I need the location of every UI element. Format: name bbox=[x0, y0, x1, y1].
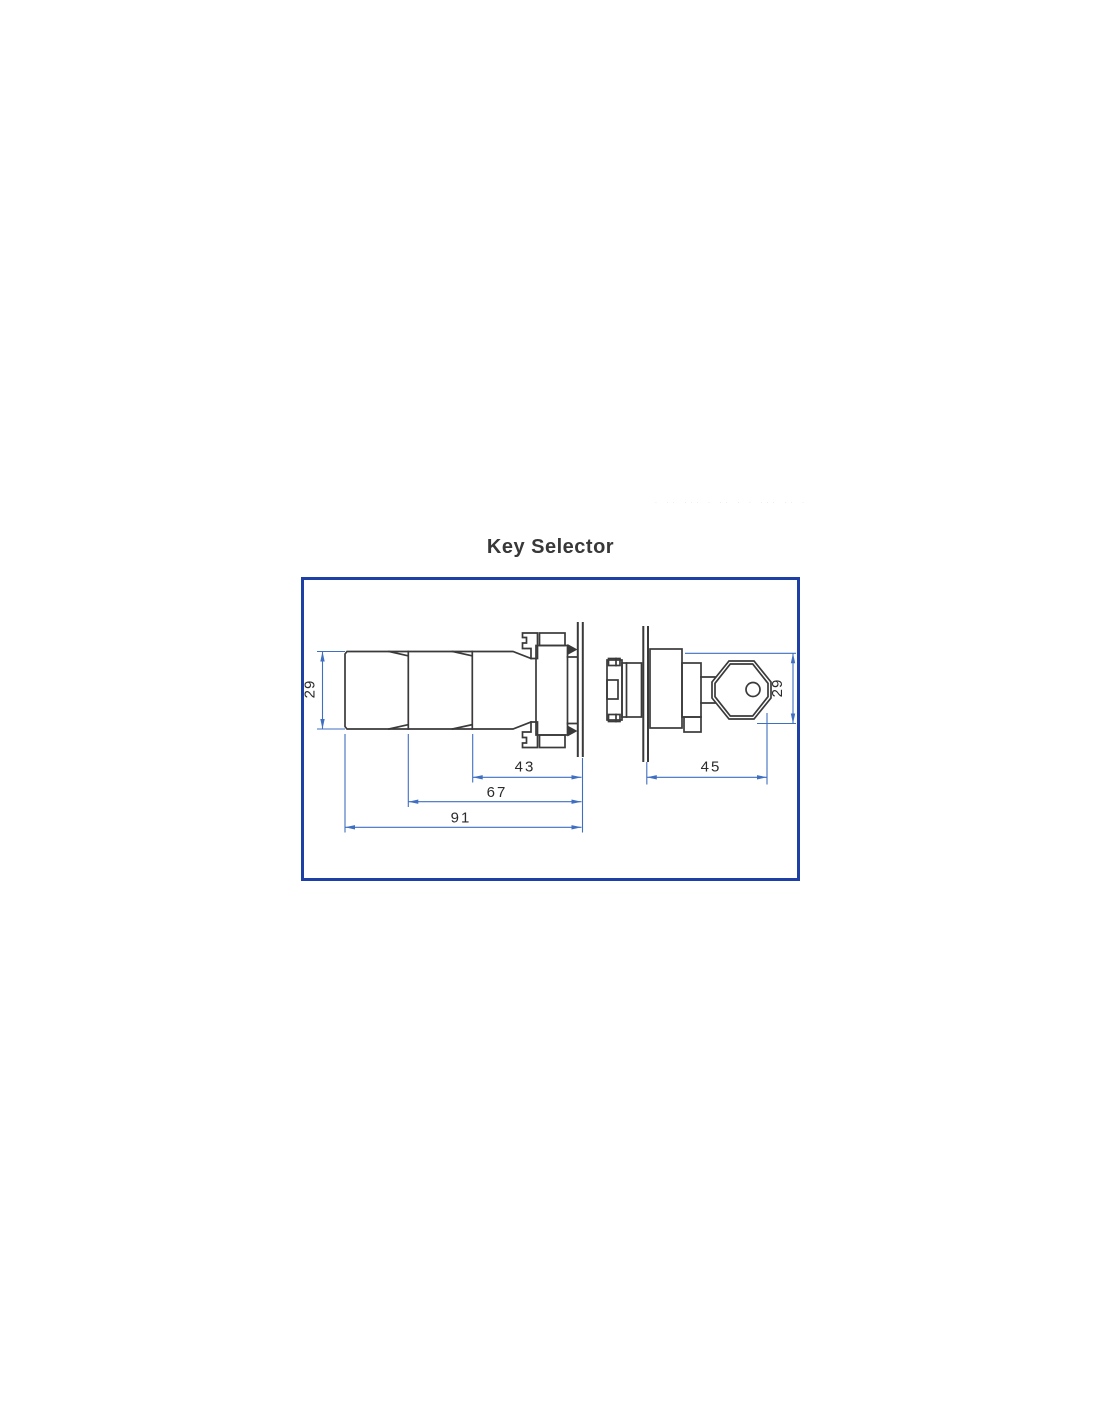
panel-right bbox=[643, 626, 648, 762]
front-bezel bbox=[682, 663, 701, 717]
dim-label-29-left: 29 bbox=[302, 680, 319, 699]
dim-label-91: 91 bbox=[451, 810, 472, 827]
dim-29-left-lines bbox=[317, 652, 345, 730]
dim-label-43: 43 bbox=[515, 759, 536, 776]
technical-drawing: 29 43 67 91 45 29 bbox=[301, 577, 800, 881]
mounting-flange bbox=[536, 646, 568, 736]
flange-step-top bbox=[540, 633, 566, 646]
dim-label-67: 67 bbox=[487, 784, 508, 801]
side-view bbox=[345, 622, 583, 757]
neck-lines bbox=[568, 657, 578, 724]
key-view bbox=[607, 626, 771, 762]
dim-label-45: 45 bbox=[701, 759, 722, 776]
switch-body bbox=[650, 649, 682, 728]
block-window bbox=[607, 680, 618, 699]
page-title: Key Selector bbox=[301, 536, 800, 559]
dimensions: 29 43 67 91 45 29 bbox=[302, 652, 797, 833]
page: { "title": "Key Selector", "artifact_mar… bbox=[0, 0, 1100, 1422]
flange-step-bottom bbox=[540, 735, 566, 748]
bezel-bottom-tab bbox=[684, 717, 701, 732]
contact-block-collar bbox=[622, 663, 642, 717]
key-hole bbox=[746, 683, 760, 697]
body-outline bbox=[345, 652, 531, 730]
key-head-outer bbox=[712, 661, 771, 719]
latch-arrow-bottom bbox=[568, 726, 578, 737]
faint-artifact-marks: · ·· ··· · ·· · · ··· ·· · bbox=[655, 500, 855, 512]
contact-block bbox=[607, 660, 622, 720]
body-tapers bbox=[389, 652, 472, 730]
dim-label-29-right: 29 bbox=[769, 679, 786, 698]
panel-left bbox=[578, 622, 583, 757]
latch-arrow-top bbox=[568, 644, 578, 655]
